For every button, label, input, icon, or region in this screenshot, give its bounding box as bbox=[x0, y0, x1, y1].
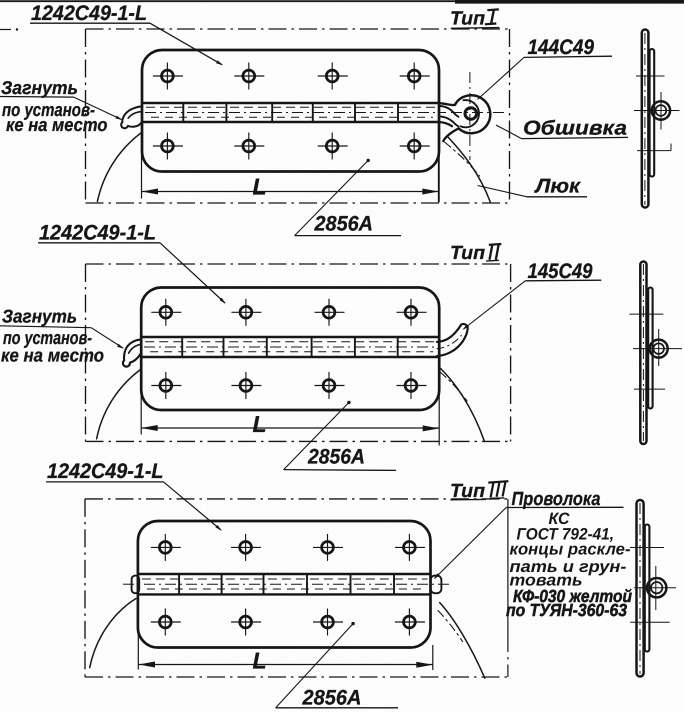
svg-text:2856А: 2856А bbox=[302, 687, 362, 710]
svg-text:1242С49-1-L: 1242С49-1-L bbox=[47, 460, 164, 483]
svg-text:по ТУЯН-360-63: по ТУЯН-360-63 bbox=[506, 600, 627, 620]
svg-text:ке на место: ке на место bbox=[6, 114, 108, 135]
svg-text:Тип: Тип bbox=[450, 243, 485, 264]
svg-text:1242С49-1-L: 1242С49-1-L bbox=[31, 2, 147, 25]
svg-text:концы раскле-: концы раскле- bbox=[510, 541, 632, 559]
svg-text:Обшивка: Обшивка bbox=[523, 118, 627, 140]
svg-text:L: L bbox=[253, 411, 267, 437]
svg-text:Загнуть: Загнуть bbox=[2, 306, 77, 327]
svg-text:L: L bbox=[253, 174, 267, 200]
svg-text:2856А: 2856А bbox=[314, 213, 373, 236]
svg-text:2856А: 2856А bbox=[307, 446, 365, 469]
svg-text:144С49: 144С49 bbox=[528, 36, 595, 59]
svg-text:Люк: Люк bbox=[533, 176, 581, 198]
svg-text:1242С49-1-L: 1242С49-1-L bbox=[39, 222, 156, 245]
svg-text:ке на место: ке на место bbox=[1, 345, 104, 366]
svg-text:Тип: Тип bbox=[450, 9, 485, 30]
svg-text:145С49: 145С49 bbox=[528, 260, 593, 283]
svg-text:Загнуть: Загнуть bbox=[1, 77, 78, 98]
svg-text:L: L bbox=[253, 648, 267, 674]
